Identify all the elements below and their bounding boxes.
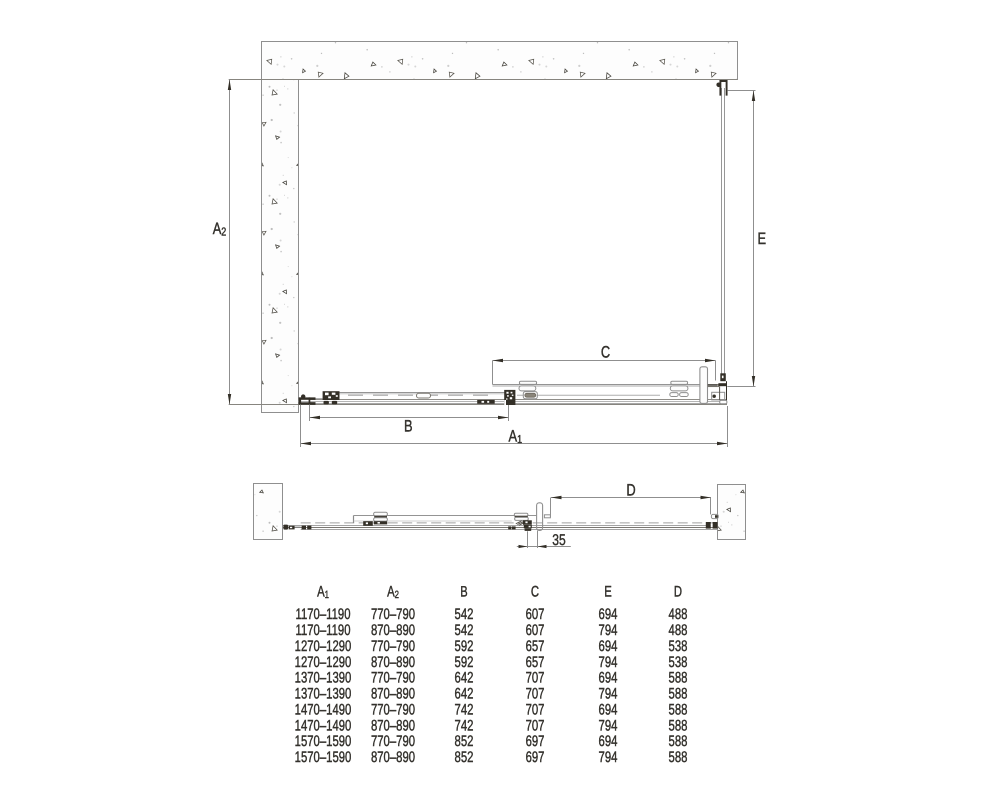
svg-text:1270–1290870–890592657794538: 1270–1290870–890592657794538 [295, 654, 688, 671]
svg-text:A2: A2 [213, 220, 227, 239]
svg-text:C: C [601, 344, 610, 362]
svg-text:1270–1290770–790592657694538: 1270–1290770–790592657694538 [295, 638, 688, 655]
svg-text:1470–1490870–890742707794588: 1470–1490870–890742707794588 [295, 717, 688, 734]
svg-text:1170–1190770–790542607694488: 1170–1190770–790542607694488 [296, 606, 688, 623]
svg-text:A1: A1 [509, 427, 523, 446]
svg-text:D: D [626, 482, 635, 500]
svg-text:1170–1190870–890542607794488: 1170–1190870–890542607794488 [296, 622, 688, 639]
svg-text:1370–1390870–890642707794588: 1370–1390870–890642707794588 [295, 686, 688, 703]
svg-text:A1A2BCED: A1A2BCED [317, 583, 682, 601]
svg-text:1570–1590770–790852697694588: 1570–1590770–790852697694588 [295, 733, 688, 750]
svg-text:E: E [758, 230, 767, 248]
svg-text:35: 35 [552, 532, 565, 549]
svg-text:1370–1390770–790642707694588: 1370–1390770–790642707694588 [295, 670, 688, 687]
svg-text:1570–1590870–890852697794588: 1570–1590870–890852697794588 [295, 749, 688, 766]
svg-text:B: B [404, 418, 413, 436]
svg-text:1470–1490770–790742707694588: 1470–1490770–790742707694588 [295, 701, 688, 718]
